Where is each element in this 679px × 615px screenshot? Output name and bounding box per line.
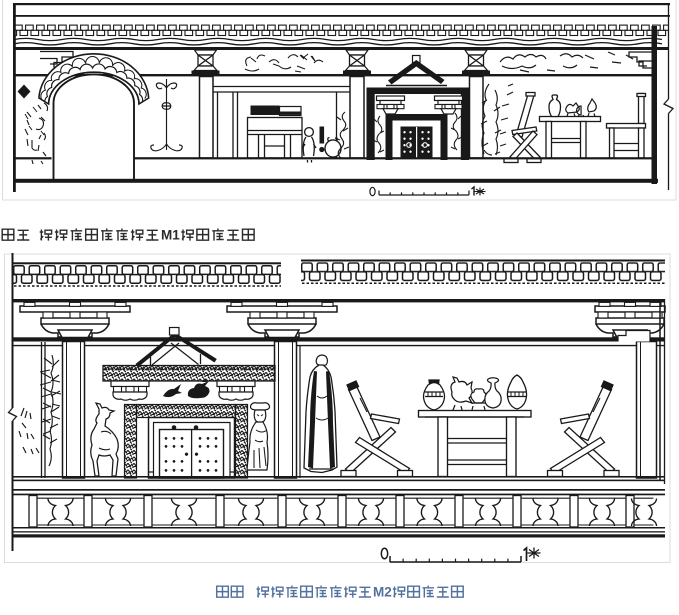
svg-text:M2: M2	[373, 585, 392, 600]
svg-text:M1: M1	[161, 228, 180, 243]
